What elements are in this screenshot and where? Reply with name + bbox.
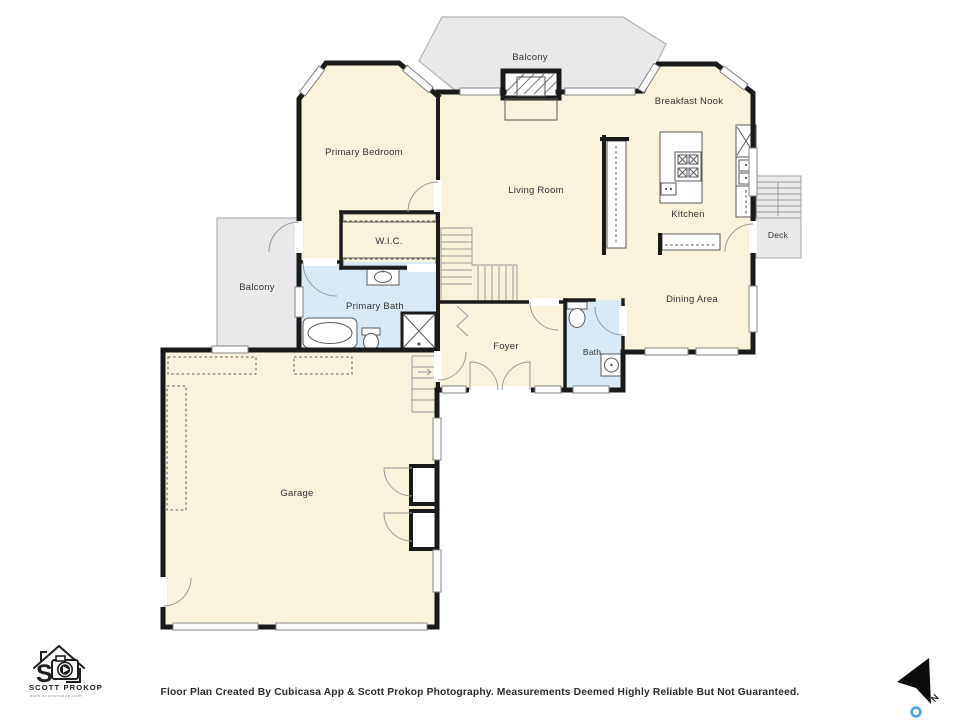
room-label-deck: Deck	[768, 230, 789, 240]
toilet-icon	[362, 328, 380, 351]
toilet-icon	[567, 302, 587, 328]
garage-door	[173, 623, 258, 630]
deck-area	[756, 176, 801, 258]
room-label-kitchen: Kitchen	[671, 209, 704, 220]
vanity-sink-icon	[367, 268, 399, 285]
logo-name: SCOTT PROKOP	[29, 683, 103, 692]
room-label-balcony-left: Balcony	[239, 282, 275, 293]
room-label-balcony-top: Balcony	[512, 52, 548, 63]
garage-side-stoop	[411, 466, 437, 504]
room-label-breakfast-nook: Breakfast Nook	[655, 96, 723, 107]
room-label-wic: W.I.C.	[375, 236, 402, 247]
kitchen-island-icon	[660, 132, 702, 203]
map-pin-icon	[912, 708, 921, 717]
kitchen-peninsula-counter	[662, 234, 720, 250]
photographer-logo: S SCOTT PROKOP www.scottprokop.com	[29, 646, 103, 698]
garage-side-stoop	[411, 511, 437, 549]
logo-house-camera-icon: S	[34, 646, 84, 688]
footer-disclaimer: Floor Plan Created By Cubicasa App & Sco…	[161, 687, 800, 698]
garage-door	[276, 623, 427, 630]
room-label-primary-bedroom: Primary Bedroom	[325, 147, 403, 158]
shower-icon	[402, 313, 436, 349]
room-label-garage: Garage	[280, 488, 313, 499]
bath-sink-icon	[601, 354, 622, 376]
compass: N	[897, 658, 941, 716]
logo-website: www.scottprokop.com	[30, 693, 82, 698]
kitchen-divider-counter	[607, 141, 626, 248]
room-label-living-room: Living Room	[508, 185, 564, 196]
room-label-primary-bath: Primary Bath	[346, 301, 404, 312]
bathtub-icon	[303, 318, 357, 348]
north-arrow-icon	[897, 658, 931, 704]
room-label-foyer: Foyer	[493, 341, 519, 352]
room-label-bath: Bath	[583, 347, 601, 357]
floor-plan: Balcony Primary Bedroom Breakfast Nook L…	[0, 0, 960, 720]
room-label-dining-area: Dining Area	[666, 294, 718, 305]
